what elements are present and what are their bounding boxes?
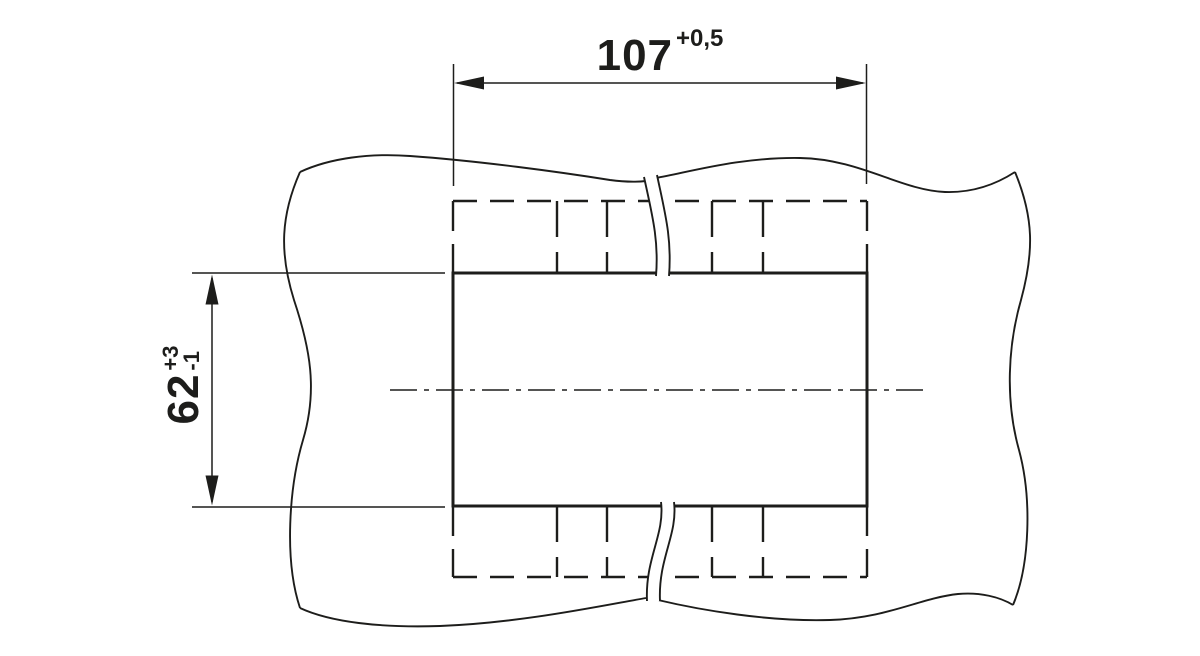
width-dimension-label: 107 +0,5 — [597, 36, 724, 76]
width-dimension — [454, 64, 867, 186]
panel-edge-left — [284, 172, 311, 608]
panel-edge-bottom-left — [300, 598, 646, 626]
height-tolerance-lower: -1 — [182, 345, 203, 370]
height-dimension-label: 62 +3 -1 — [162, 345, 206, 424]
panel-edge-top-left — [300, 155, 646, 181]
height-dimension-tolerances: +3 -1 — [161, 345, 203, 370]
arrowhead-left — [454, 77, 484, 90]
panel-edge-top-right — [656, 158, 1015, 192]
width-dimension-tolerance: +0,5 — [676, 27, 723, 51]
break-band-top — [644, 175, 670, 276]
arrowhead-right — [836, 77, 866, 90]
height-dimension-value: 62 — [162, 374, 206, 425]
width-dimension-value: 107 — [597, 36, 673, 76]
panel-edge-bottom-right — [658, 594, 1013, 621]
arrowhead-down — [206, 476, 219, 506]
technical-drawing-canvas: 107 +0,5 62 +3 -1 — [0, 0, 1200, 656]
break-band-bottom — [647, 502, 675, 601]
panel-cutout-drawing — [0, 0, 1200, 656]
panel-edge-right — [1010, 172, 1030, 605]
arrowhead-up — [206, 275, 219, 305]
